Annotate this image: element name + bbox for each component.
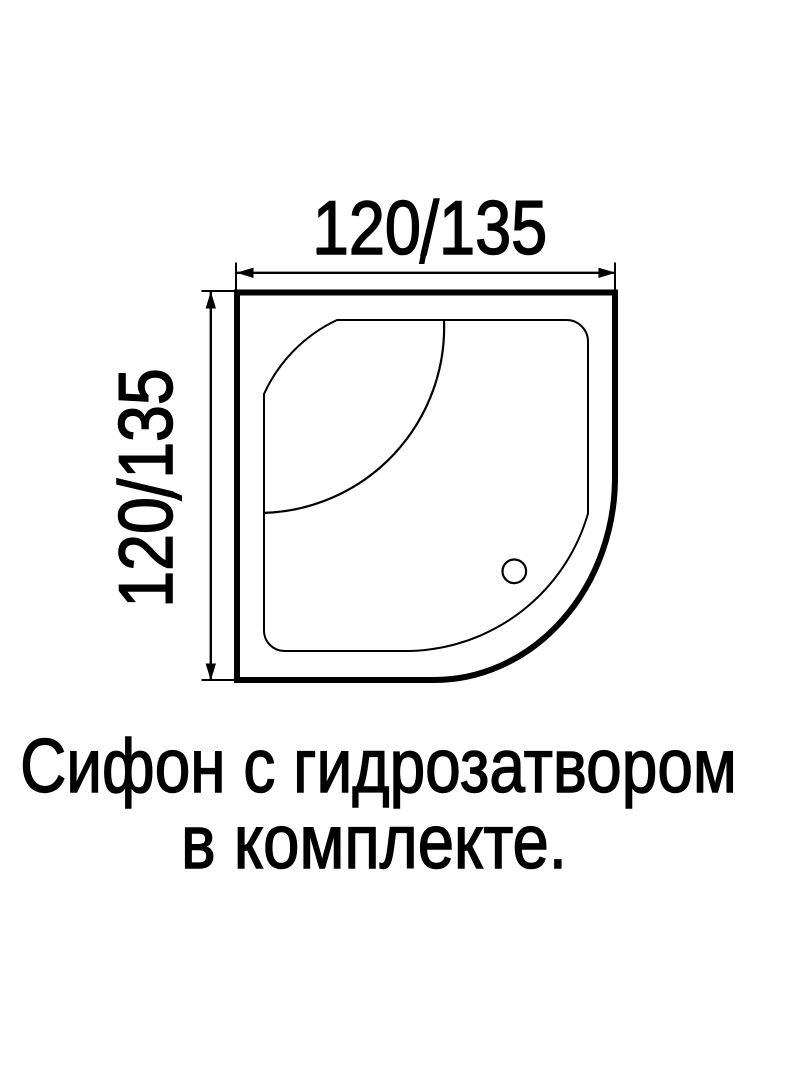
svg-text:120/135: 120/135 (104, 368, 189, 608)
svg-text:в комплекте.: в комплекте. (181, 800, 567, 885)
svg-text:Сифон с гидрозатвором: Сифон с гидрозатвором (20, 723, 737, 808)
svg-text:120/135: 120/135 (313, 185, 547, 270)
